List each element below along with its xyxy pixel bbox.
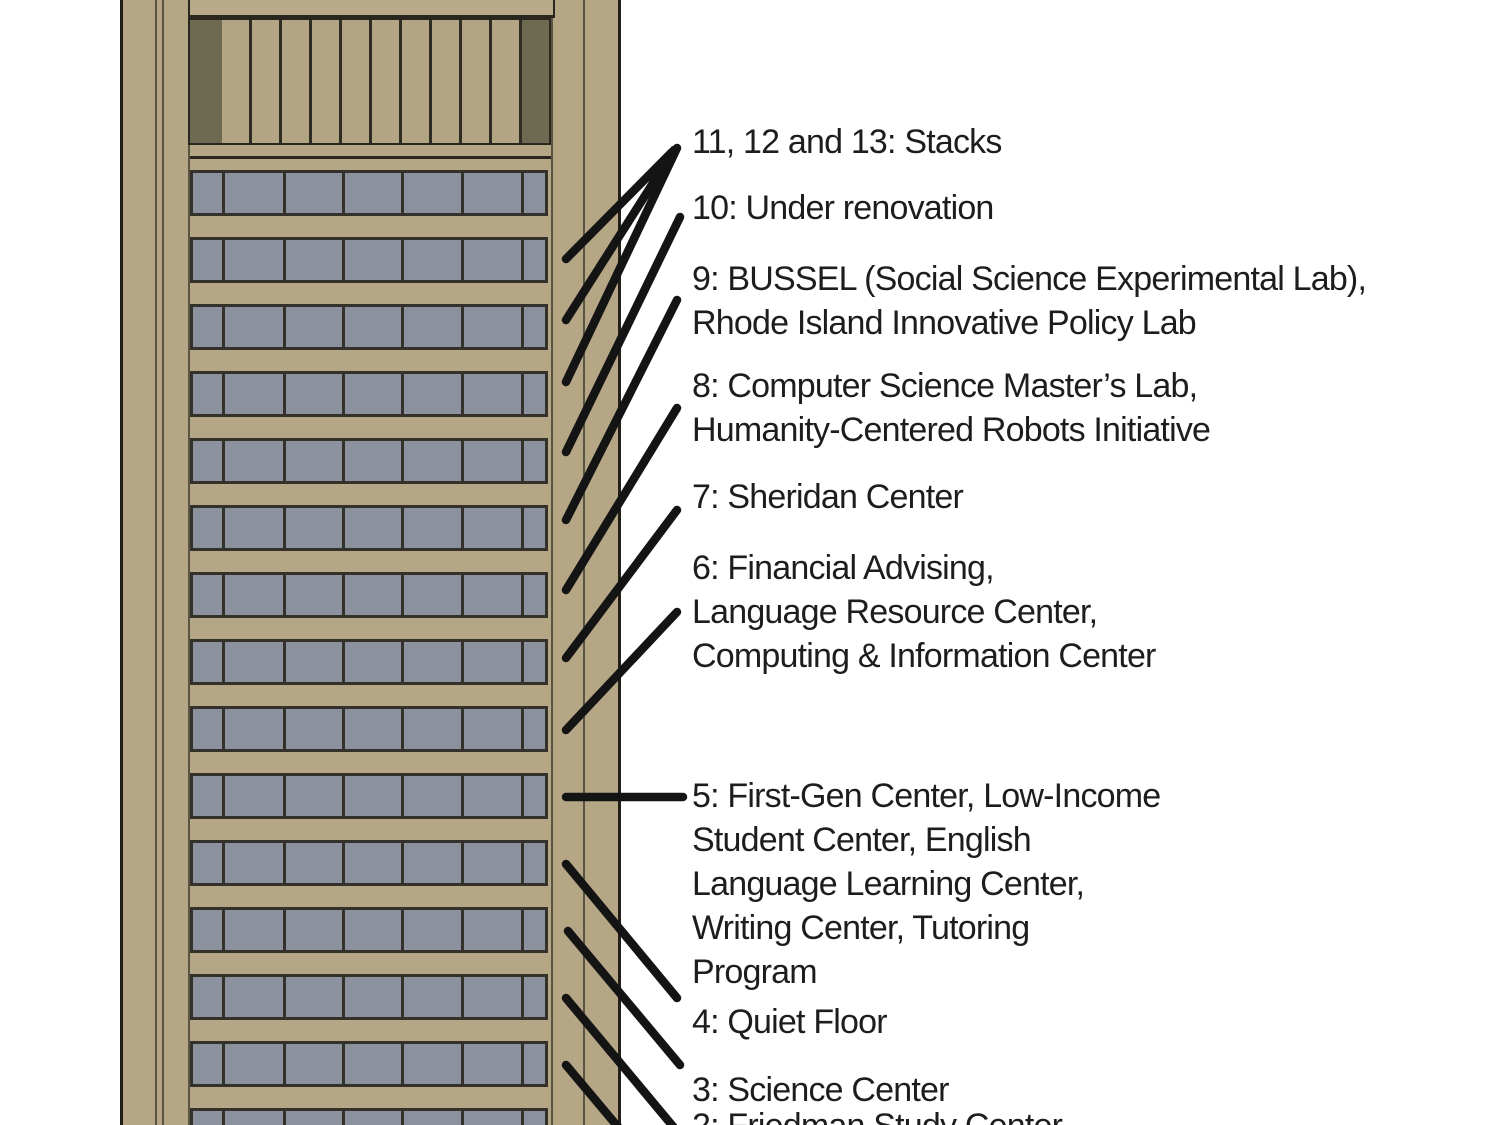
floor-label-11-12-13: 11, 12 and 13: Stacks — [692, 120, 1002, 164]
floor-label-10: 10: Under renovation — [692, 186, 994, 230]
callout-line-floor-3 — [568, 931, 680, 1065]
callout-line-floor-8 — [566, 408, 677, 590]
floor-label-8: 8: Computer Science Master’s Lab, Humani… — [692, 364, 1210, 452]
floor-label-5: 5: First-Gen Center, Low-Income Student … — [692, 774, 1160, 994]
floor-label-6: 6: Financial Advising, Language Resource… — [692, 546, 1156, 678]
callout-line-floor-4 — [566, 864, 677, 998]
floor-label-4: 4: Quiet Floor — [692, 1000, 887, 1044]
callout-line-floor-2 — [566, 998, 676, 1125]
floor-label-9: 9: BUSSEL (Social Science Experimental L… — [692, 257, 1366, 345]
floor-label-2: 2: Friedman Study Center — [692, 1104, 1062, 1125]
floor-label-7: 7: Sheridan Center — [692, 475, 963, 519]
callout-line-floor-11-12-13 — [566, 150, 674, 320]
floor-diagram: 11, 12 and 13: Stacks10: Under renovatio… — [0, 0, 1500, 1125]
